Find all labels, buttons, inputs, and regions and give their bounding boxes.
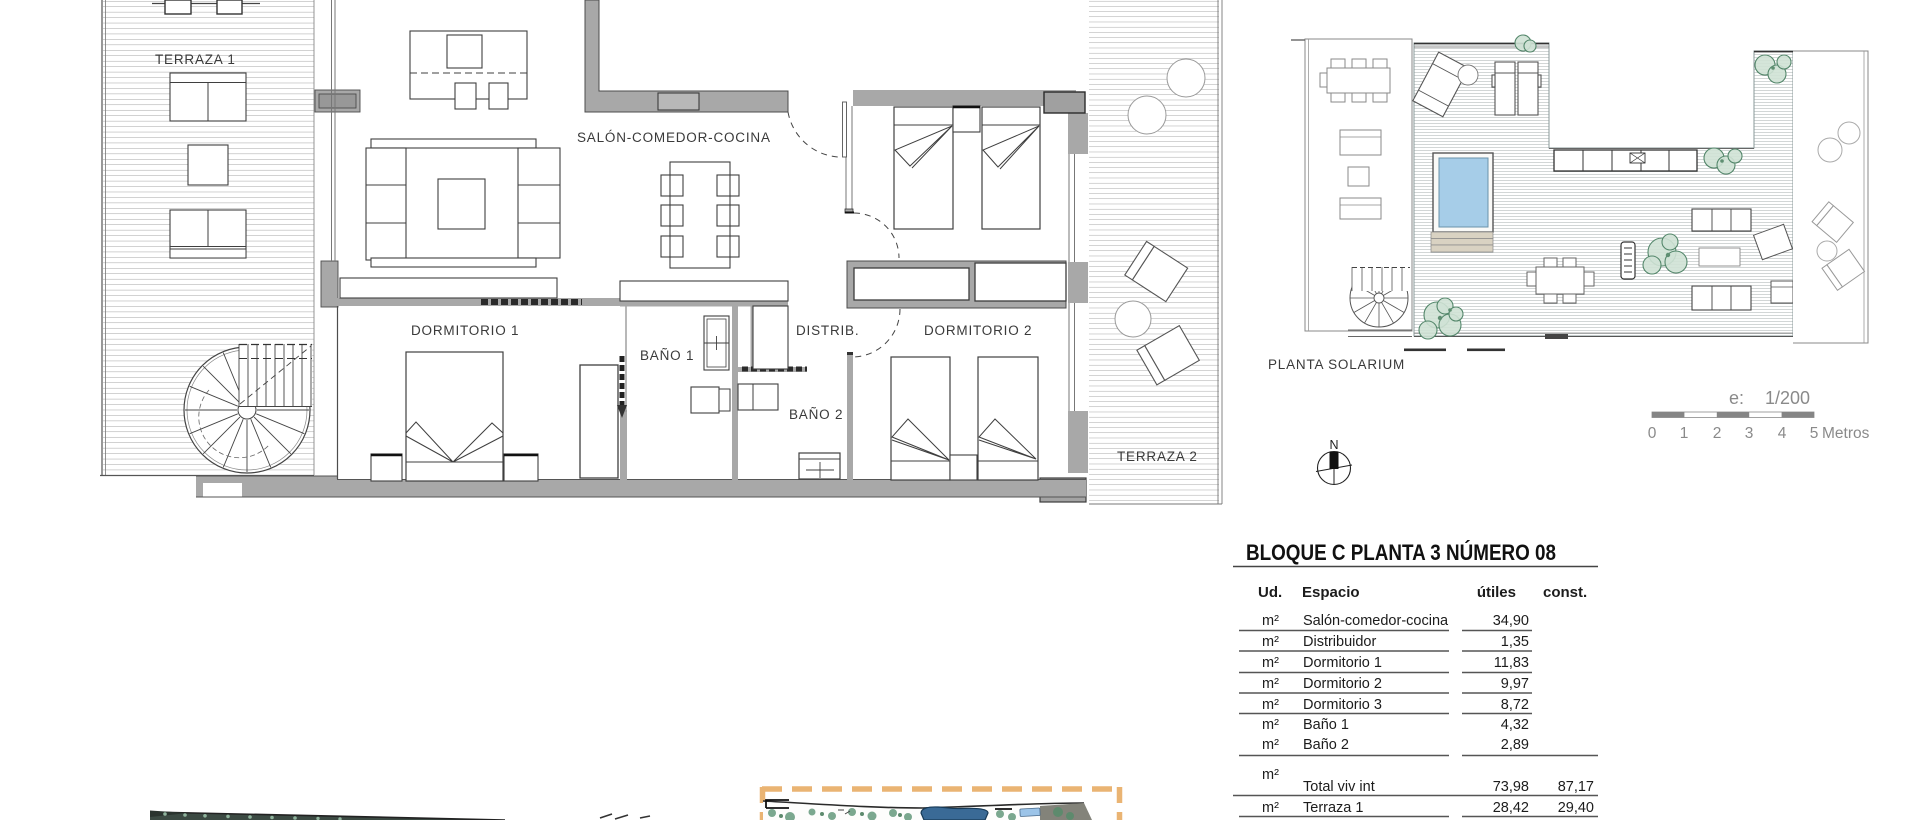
svg-text:0: 0 [1648,425,1657,442]
svg-text:9,97: 9,97 [1501,676,1529,692]
svg-text:1,35: 1,35 [1501,634,1529,650]
svg-text:Dormitorio 2: Dormitorio 2 [1303,676,1382,692]
svg-text:m²: m² [1262,800,1279,816]
svg-text:4: 4 [1778,425,1787,442]
svg-text:29,40: 29,40 [1558,800,1594,816]
svg-text:BAÑO 1: BAÑO 1 [640,348,694,363]
svg-text:m²: m² [1262,737,1279,753]
svg-text:SALÓN-COMEDOR-COCINA: SALÓN-COMEDOR-COCINA [577,130,771,145]
svg-text:DISTRIB.: DISTRIB. [796,323,859,338]
svg-text:2,89: 2,89 [1501,737,1529,753]
svg-text:Metros: Metros [1822,425,1870,442]
svg-text:Dormitorio 1: Dormitorio 1 [1303,655,1382,671]
svg-text:11,83: 11,83 [1494,655,1529,671]
svg-text:Total viv int: Total viv int [1303,779,1375,795]
svg-text:DORMITORIO 2: DORMITORIO 2 [924,323,1032,338]
svg-text:e:: e: [1729,388,1744,408]
svg-text:m²: m² [1262,613,1279,629]
svg-text:3: 3 [1745,425,1754,442]
svg-text:DORMITORIO 1: DORMITORIO 1 [411,323,519,338]
svg-text:4,32: 4,32 [1501,717,1529,733]
svg-text:TERRAZA 2: TERRAZA 2 [1117,449,1198,464]
svg-text:BAÑO 2: BAÑO 2 [789,407,843,422]
svg-text:Dormitorio 3: Dormitorio 3 [1303,697,1382,713]
svg-text:m²: m² [1262,655,1279,671]
svg-text:87,17: 87,17 [1558,779,1594,795]
svg-text:m²: m² [1262,676,1279,692]
svg-text:N: N [1329,438,1338,452]
svg-text:Espacio: Espacio [1302,584,1360,601]
svg-text:5: 5 [1810,425,1819,442]
svg-text:m²: m² [1262,767,1279,783]
svg-text:PLANTA SOLARIUM: PLANTA SOLARIUM [1268,357,1405,372]
svg-text:2: 2 [1713,425,1722,442]
svg-text:m²: m² [1262,717,1279,733]
svg-text:TERRAZA 1: TERRAZA 1 [155,52,236,67]
svg-text:8,72: 8,72 [1501,697,1529,713]
svg-text:28,42: 28,42 [1493,800,1529,816]
svg-text:1/200: 1/200 [1765,388,1810,408]
svg-text:útiles: útiles [1477,584,1516,601]
svg-text:73,98: 73,98 [1493,779,1529,795]
svg-text:BLOQUE C PLANTA 3 NÚMERO 08: BLOQUE C PLANTA 3 NÚMERO 08 [1246,540,1556,565]
svg-text:const.: const. [1543,584,1587,601]
svg-text:Ud.: Ud. [1258,584,1282,601]
svg-text:1: 1 [1680,425,1689,442]
svg-text:34,90: 34,90 [1493,613,1529,629]
svg-text:Salón-comedor-cocina: Salón-comedor-cocina [1303,613,1449,629]
svg-text:Baño 1: Baño 1 [1303,717,1349,733]
svg-text:m²: m² [1262,634,1279,650]
svg-text:m²: m² [1262,697,1279,713]
svg-text:Baño 2: Baño 2 [1303,737,1349,753]
svg-text:Distribuidor: Distribuidor [1303,634,1376,650]
svg-text:Terraza 1: Terraza 1 [1303,800,1363,816]
